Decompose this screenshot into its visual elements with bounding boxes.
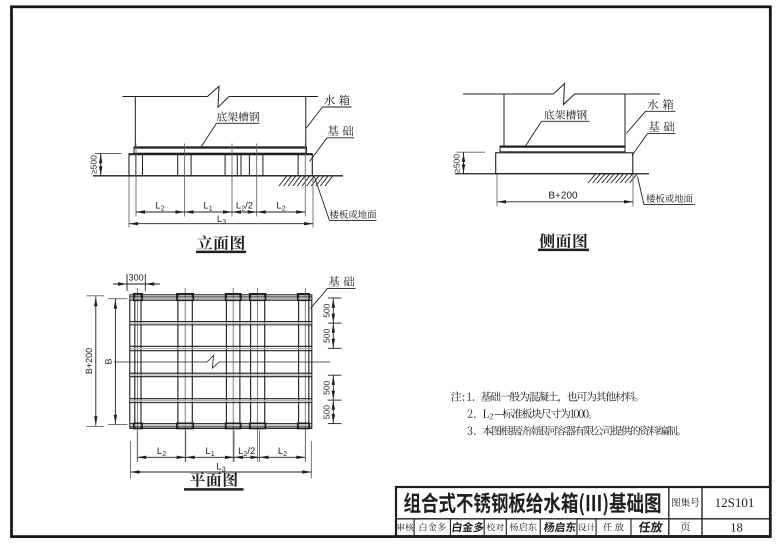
svg-text:L2/2: L2/2 <box>238 446 255 458</box>
svg-text:500: 500 <box>322 303 332 317</box>
svg-text:12S101: 12S101 <box>715 495 755 510</box>
svg-text:B: B <box>104 358 114 364</box>
svg-text:≥500: ≥500 <box>89 155 99 174</box>
svg-text:500: 500 <box>322 329 332 343</box>
svg-text:≥500: ≥500 <box>451 154 461 173</box>
svg-text:300: 300 <box>129 272 144 282</box>
svg-text:500: 500 <box>322 405 332 419</box>
svg-text:18: 18 <box>730 521 743 535</box>
svg-text:B+200: B+200 <box>548 191 578 202</box>
svg-text:B+200: B+200 <box>84 348 94 374</box>
svg-text:L2/2: L2/2 <box>236 201 253 213</box>
svg-text:500: 500 <box>322 380 332 394</box>
